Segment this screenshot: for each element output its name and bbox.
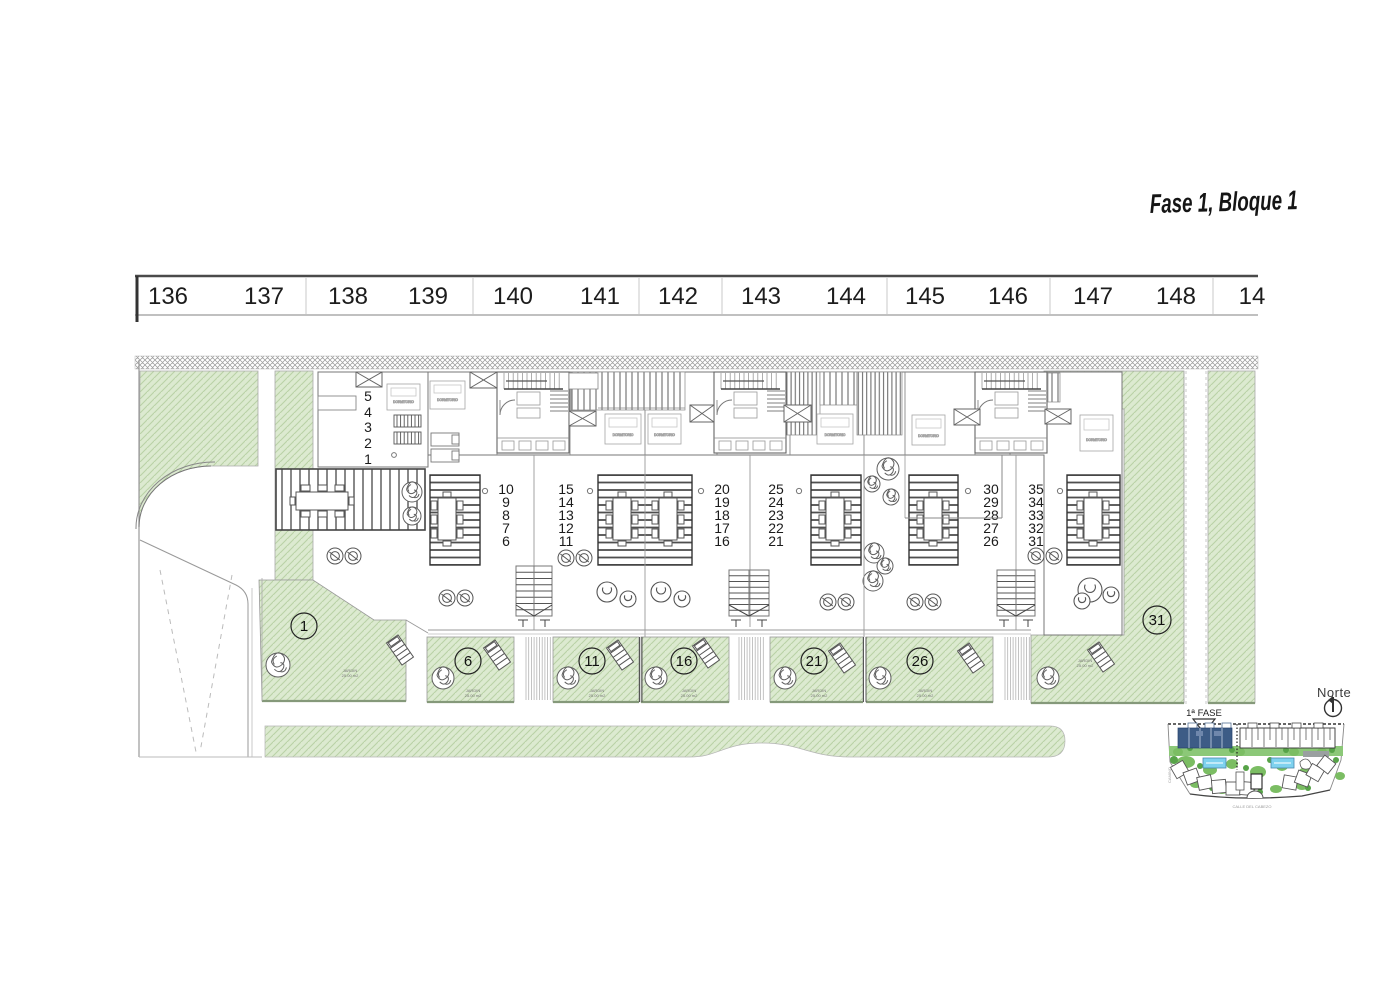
- svg-text:DORMITORIO: DORMITORIO: [613, 433, 634, 437]
- svg-text:3: 3: [364, 419, 372, 435]
- svg-text:26: 26: [912, 653, 929, 670]
- svg-text:139: 139: [408, 283, 448, 310]
- svg-text:25.00 m2: 25.00 m2: [342, 673, 359, 678]
- svg-text:11: 11: [559, 533, 574, 549]
- svg-text:DORMITORIO: DORMITORIO: [393, 400, 414, 404]
- svg-text:145: 145: [905, 283, 945, 310]
- svg-text:4: 4: [364, 404, 372, 420]
- svg-text:25.00 m2: 25.00 m2: [681, 693, 698, 698]
- svg-text:16: 16: [714, 533, 730, 549]
- svg-text:11: 11: [584, 653, 600, 670]
- svg-text:144: 144: [826, 283, 866, 310]
- svg-text:1: 1: [300, 618, 308, 635]
- svg-text:5: 5: [364, 388, 372, 404]
- svg-text:25.00 m2: 25.00 m2: [811, 693, 828, 698]
- svg-text:Fase 1, Bloque 1: Fase 1, Bloque 1: [1149, 185, 1298, 219]
- svg-text:140: 140: [493, 283, 533, 310]
- svg-text:DORMITORIO: DORMITORIO: [1086, 438, 1107, 442]
- svg-text:137: 137: [244, 283, 284, 310]
- svg-text:16: 16: [676, 653, 693, 670]
- svg-text:6: 6: [502, 533, 510, 549]
- svg-text:146: 146: [988, 283, 1028, 310]
- svg-text:DORMITORIO: DORMITORIO: [437, 398, 458, 402]
- svg-text:147: 147: [1073, 283, 1113, 310]
- svg-text:2: 2: [364, 435, 372, 451]
- svg-text:141: 141: [580, 283, 620, 310]
- svg-text:25.00 m2: 25.00 m2: [465, 693, 482, 698]
- svg-text:21: 21: [806, 653, 823, 670]
- svg-text:31: 31: [1028, 533, 1044, 549]
- svg-text:DORMITORIO: DORMITORIO: [918, 434, 939, 438]
- svg-text:21: 21: [768, 533, 784, 549]
- svg-text:31: 31: [1149, 612, 1166, 629]
- svg-text:CALLE DEL CABEZO: CALLE DEL CABEZO: [1233, 804, 1272, 809]
- svg-text:DORMITORIO: DORMITORIO: [654, 433, 675, 437]
- svg-text:25.00 m2: 25.00 m2: [589, 693, 606, 698]
- svg-text:138: 138: [328, 283, 368, 310]
- svg-text:1ª FASE: 1ª FASE: [1186, 708, 1222, 719]
- svg-text:1: 1: [364, 451, 372, 467]
- svg-text:25.00 m2: 25.00 m2: [1077, 663, 1094, 668]
- svg-text:DORMITORIO: DORMITORIO: [825, 433, 846, 437]
- svg-text:136: 136: [148, 283, 188, 310]
- svg-text:143: 143: [741, 283, 781, 310]
- svg-text:6: 6: [464, 653, 472, 670]
- svg-text:26: 26: [983, 533, 999, 549]
- svg-text:142: 142: [658, 283, 698, 310]
- svg-text:25.00 m2: 25.00 m2: [917, 693, 934, 698]
- svg-text:14: 14: [1239, 283, 1266, 310]
- svg-text:148: 148: [1156, 283, 1196, 310]
- svg-text:CAMINO: CAMINO: [1167, 767, 1172, 783]
- svg-text:Norte: Norte: [1317, 685, 1351, 700]
